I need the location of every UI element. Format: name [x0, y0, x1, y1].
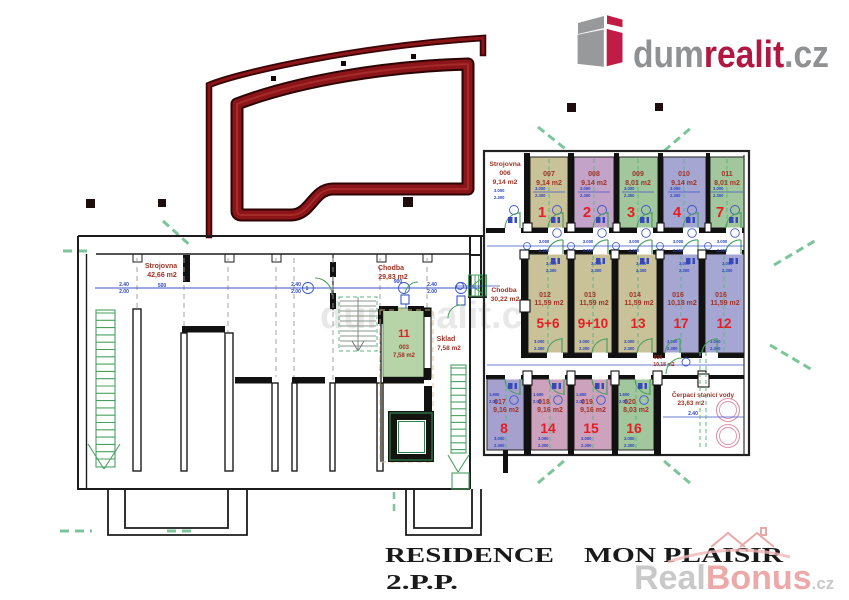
svg-text:2.300: 2.300: [581, 443, 592, 448]
svg-text:1: 1: [306, 286, 309, 292]
svg-text:3.000: 3.000: [580, 186, 591, 191]
svg-text:1.600: 1.600: [489, 392, 500, 397]
svg-text:2.00: 2.00: [619, 399, 628, 404]
svg-text:2.300: 2.300: [670, 193, 681, 198]
svg-text:23,63 m2: 23,63 m2: [677, 400, 704, 407]
svg-text:3.000: 3.000: [494, 436, 505, 441]
svg-text:42,66 m2: 42,66 m2: [147, 272, 177, 279]
svg-text:3.000: 3.000: [581, 436, 592, 441]
svg-text:014: 014: [629, 292, 641, 299]
svg-text:3.000: 3.000: [494, 188, 505, 193]
svg-text:003: 003: [399, 345, 410, 351]
svg-text:2.300: 2.300: [539, 248, 550, 253]
svg-text:2.300: 2.300: [579, 346, 590, 351]
svg-text:Sklad: Sklad: [437, 336, 456, 343]
svg-text:2.40: 2.40: [291, 282, 301, 288]
svg-text:2.300: 2.300: [591, 268, 602, 273]
svg-text:1.600: 1.600: [619, 392, 630, 397]
svg-text:3.000: 3.000: [624, 186, 635, 191]
svg-text:3.000: 3.000: [629, 239, 640, 244]
svg-text:Čerpací stanicí vody: Čerpací stanicí vody: [672, 390, 735, 399]
svg-text:2.00: 2.00: [119, 289, 129, 295]
svg-text:10,18 m2: 10,18 m2: [653, 362, 674, 368]
svg-text:12: 12: [716, 316, 731, 331]
svg-text:013: 013: [584, 292, 596, 299]
svg-text:2.300: 2.300: [580, 193, 591, 198]
svg-text:3.000: 3.000: [624, 339, 635, 344]
svg-text:3: 3: [627, 204, 635, 221]
svg-text:011: 011: [721, 171, 732, 178]
svg-text:2.300: 2.300: [624, 193, 635, 198]
svg-text:900: 900: [394, 279, 403, 285]
svg-text:8,03 m2: 8,03 m2: [623, 407, 649, 414]
svg-text:2.00: 2.00: [533, 399, 542, 404]
svg-text:3.000: 3.000: [713, 186, 724, 191]
svg-text:2.40: 2.40: [427, 282, 437, 288]
svg-text:1.600: 1.600: [576, 392, 587, 397]
svg-text:500: 500: [158, 283, 167, 289]
svg-text:RealBonus.cz: RealBonus.cz: [634, 559, 834, 597]
svg-text:Strojovna: Strojovna: [145, 263, 177, 270]
svg-text:3.000: 3.000: [534, 339, 545, 344]
svg-text:11,59 m2: 11,59 m2: [579, 300, 608, 307]
svg-text:009: 009: [632, 171, 644, 178]
svg-text:2.300: 2.300: [624, 346, 635, 351]
svg-text:11: 11: [398, 328, 410, 340]
svg-text:2.300: 2.300: [679, 268, 690, 273]
svg-text:2.00: 2.00: [291, 289, 301, 295]
svg-text:2.300: 2.300: [546, 268, 557, 273]
svg-text:5+6: 5+6: [537, 316, 560, 331]
svg-text:7: 7: [716, 204, 724, 221]
svg-text:2.300: 2.300: [534, 346, 545, 351]
svg-text:Chodba: Chodba: [491, 287, 517, 294]
svg-text:9,16 m2: 9,16 m2: [493, 407, 519, 414]
svg-text:3.000: 3.000: [579, 339, 590, 344]
svg-text:2.300: 2.300: [538, 443, 549, 448]
svg-text:2.300: 2.300: [494, 443, 505, 448]
svg-text:Strojovna: Strojovna: [489, 161, 521, 168]
svg-text:006: 006: [499, 170, 511, 177]
svg-text:3.000: 3.000: [673, 239, 684, 244]
svg-text:2.00: 2.00: [576, 399, 585, 404]
svg-text:7,58 m2: 7,58 m2: [437, 345, 461, 352]
svg-text:016: 016: [672, 292, 684, 299]
svg-text:Chodba: Chodba: [378, 265, 404, 272]
svg-text:010: 010: [678, 171, 690, 178]
svg-text:2.300: 2.300: [667, 346, 678, 351]
svg-text:2.300: 2.300: [583, 248, 594, 253]
svg-text:9+10: 9+10: [578, 316, 608, 331]
svg-text:8: 8: [500, 420, 508, 436]
svg-text:2.300: 2.300: [624, 443, 635, 448]
svg-text:2.00: 2.00: [489, 399, 498, 404]
svg-text:2.300: 2.300: [722, 268, 733, 273]
svg-text:2.P.P.: 2.P.P.: [386, 570, 458, 594]
svg-text:3.000: 3.000: [538, 436, 549, 441]
svg-text:3.000: 3.000: [624, 436, 635, 441]
svg-text:1: 1: [538, 204, 546, 221]
svg-text:dumrealit.cz: dumrealit.cz: [633, 34, 829, 76]
svg-text:016: 016: [715, 292, 727, 299]
svg-text:3.000: 3.000: [583, 239, 594, 244]
svg-text:15: 15: [583, 420, 599, 436]
svg-text:2.40: 2.40: [688, 411, 698, 417]
svg-text:10,18 m2: 10,18 m2: [667, 300, 697, 307]
svg-text:11,59 m2: 11,59 m2: [534, 300, 563, 307]
svg-text:3.000: 3.000: [539, 239, 550, 244]
svg-text:2.300: 2.300: [710, 346, 721, 351]
svg-text:9,16 m2: 9,16 m2: [537, 407, 563, 414]
svg-text:2.300: 2.300: [717, 248, 728, 253]
svg-text:2.300: 2.300: [494, 195, 505, 200]
svg-text:008: 008: [588, 171, 600, 178]
svg-text:2.300: 2.300: [636, 268, 647, 273]
svg-text:1.600: 1.600: [533, 392, 544, 397]
svg-text:2.300: 2.300: [535, 193, 546, 198]
svg-text:3.000: 3.000: [717, 239, 728, 244]
svg-text:30,22 m2: 30,22 m2: [491, 296, 520, 303]
svg-text:007: 007: [543, 171, 555, 178]
svg-text:7,58 m2: 7,58 m2: [393, 353, 416, 359]
svg-text:11,59 m2: 11,59 m2: [710, 300, 739, 307]
svg-text:2.300: 2.300: [673, 248, 684, 253]
svg-text:2: 2: [583, 204, 591, 221]
svg-text:3.000: 3.000: [535, 186, 546, 191]
svg-text:4: 4: [673, 204, 682, 221]
svg-text:16: 16: [626, 420, 642, 436]
svg-text:13: 13: [630, 316, 646, 331]
svg-text:2.40: 2.40: [119, 282, 129, 288]
svg-text:2.300: 2.300: [713, 193, 724, 198]
svg-text:9,14 m2: 9,14 m2: [493, 179, 518, 186]
svg-text:2.00: 2.00: [427, 289, 437, 295]
svg-text:3.000: 3.000: [670, 186, 681, 191]
svg-text:2.300: 2.300: [629, 248, 640, 253]
svg-text:14: 14: [540, 420, 556, 436]
svg-text:RESIDENCE: RESIDENCE: [385, 543, 554, 567]
svg-text:9,16 m2: 9,16 m2: [580, 407, 606, 414]
svg-text:016: 016: [654, 355, 663, 361]
svg-text:012: 012: [539, 292, 551, 299]
svg-text:11,59 m2: 11,59 m2: [624, 300, 653, 307]
svg-text:17: 17: [673, 316, 688, 331]
